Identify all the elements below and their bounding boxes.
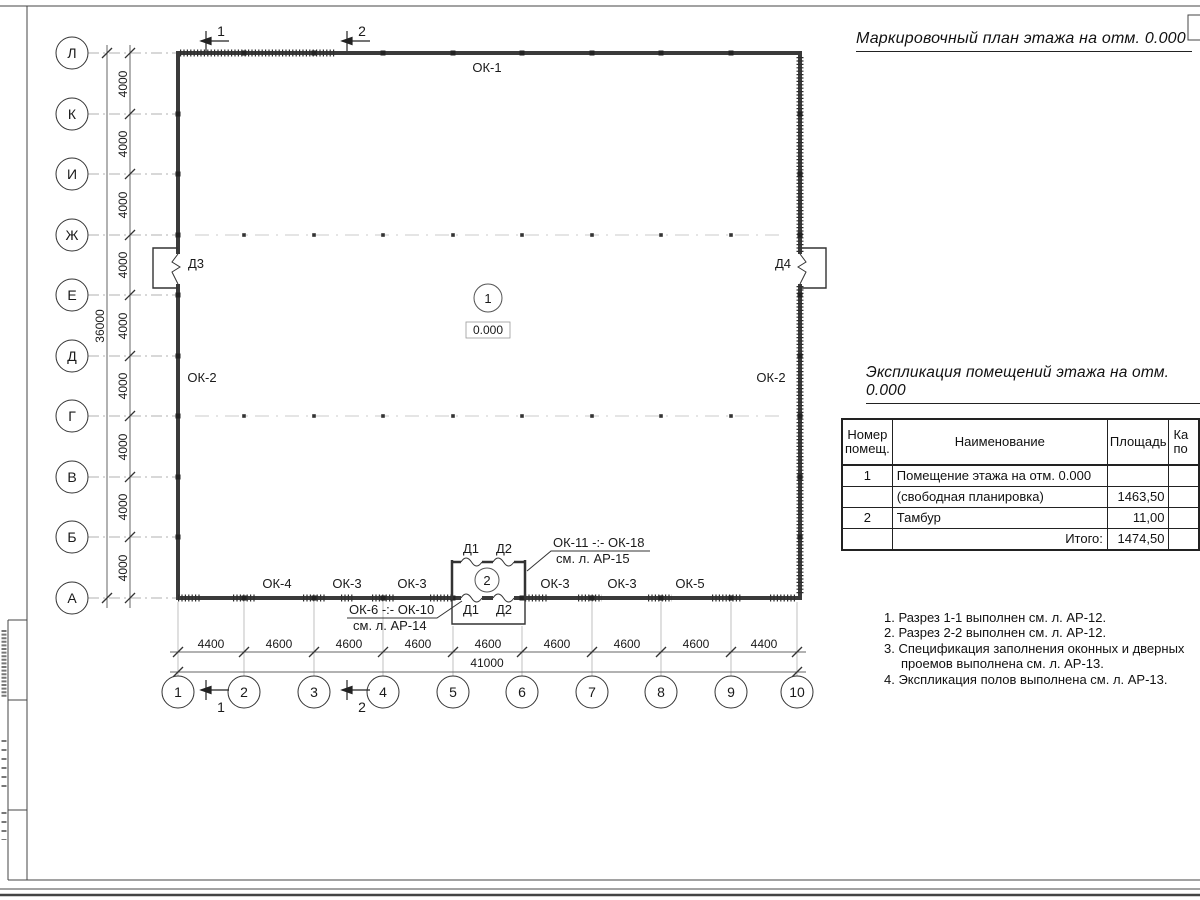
schedule-total-row: Итого: 1474,50: [842, 529, 1199, 551]
header-room-number-line1: Номер: [845, 428, 890, 442]
cell-room-area: [1107, 465, 1169, 487]
cell-room-name: (свободная планировка): [892, 487, 1107, 508]
header-name: Наименование: [892, 419, 1107, 465]
door-d3-leaf: [172, 254, 180, 284]
dim-label: 4400: [198, 637, 225, 651]
axis-row-label: Б: [67, 529, 76, 545]
dim-label: 4600: [475, 637, 502, 651]
dim-label: 4400: [751, 637, 778, 651]
row-dimension-labels: 4000 4000 4000 4000 4000 4000 4000 4000 …: [93, 70, 130, 581]
cell-room-area: 1463,50: [1107, 487, 1169, 508]
drawing-sheet: 4000 4000 4000 4000 4000 4000 4000 4000 …: [0, 0, 1200, 900]
window-tag: ОК-3: [397, 576, 426, 591]
axis-col-label: 1: [174, 684, 182, 700]
room-1-number: 1: [484, 291, 491, 306]
axis-col-bubbles: [162, 676, 813, 708]
axis-col-label: 5: [449, 684, 457, 700]
dim-label: 4600: [336, 637, 363, 651]
axis-row-label: Д: [67, 348, 77, 364]
section-label: 2: [358, 699, 366, 715]
section-mark-labels: 1 2 1 2: [217, 23, 366, 715]
window-tag: ОК-4: [262, 576, 291, 591]
axis-col-label: 4: [379, 684, 387, 700]
note-item: 2. Разрез 2-2 выполнен см. л. АР-12.: [884, 625, 1188, 640]
schedule-title: Экспликация помещений этажа на отм. 0.00…: [866, 364, 1200, 404]
cell-clipped: [1169, 529, 1199, 551]
door-tag-d1: Д1: [463, 541, 479, 556]
header-clipped: Ка по: [1169, 419, 1199, 465]
schedule-row: (свободная планировка) 1463,50: [842, 487, 1199, 508]
axis-row-label: Л: [67, 45, 76, 61]
cell-room-number: [842, 529, 892, 551]
door-tag-d1: Д1: [463, 602, 479, 617]
dim-label: 4000: [116, 433, 130, 460]
dim-label: 4000: [116, 251, 130, 278]
schedule-row: 1 Помещение этажа на отм. 0.000: [842, 465, 1199, 487]
note-item: 4. Экспликация полов выполнена см. л. АР…: [884, 672, 1188, 687]
dim-label: 4600: [683, 637, 710, 651]
axis-row-label: Ж: [66, 227, 79, 243]
header-clipped-line1: Ка: [1173, 428, 1196, 442]
cell-total-area: 1474,50: [1107, 529, 1169, 551]
cell-room-name: Тамбур: [892, 508, 1107, 529]
window-tag-ok2-left: ОК-2: [187, 370, 216, 385]
axis-row-label: К: [68, 106, 77, 122]
axis-row-label: А: [67, 590, 77, 606]
dim-label: 4600: [405, 637, 432, 651]
plan-title: Маркировочный план этажа на отм. 0.000: [856, 30, 1192, 52]
window-tag: ОК-5: [675, 576, 704, 591]
dim-label: 4000: [116, 191, 130, 218]
section-label: 1: [217, 23, 225, 39]
header-clipped-line2: по: [1173, 442, 1196, 456]
dim-label: 4600: [614, 637, 641, 651]
axis-col-label: 9: [727, 684, 735, 700]
header-room-number-line2: помещ.: [845, 442, 890, 456]
dim-total-label: 36000: [93, 309, 107, 343]
door-tag-d3: Д3: [188, 256, 204, 271]
axis-row-bubbles: [56, 37, 88, 614]
axis-col-bubble-labels: 1 2 3 4 5 6 7 8 9 10: [174, 684, 805, 700]
door-tag-d2: Д2: [496, 602, 512, 617]
axis-col-label: 7: [588, 684, 596, 700]
dim-label: 4000: [116, 130, 130, 157]
note-item: 1. Разрез 1-1 выполнен см. л. АР-12.: [884, 610, 1188, 625]
col-dimension-labels: 4400 4600 4600 4600 4600 4600 4600 4600 …: [198, 637, 778, 670]
axis-row-label: Е: [67, 287, 76, 303]
door-tag-d4: Д4: [775, 256, 791, 271]
dim-label: 4600: [266, 637, 293, 651]
schedule-header-row: Номер помещ. Наименование Площадь Ка по: [842, 419, 1199, 465]
cell-clipped: [1169, 508, 1199, 529]
section-label: 2: [358, 23, 366, 39]
window-tag: ОК-3: [607, 576, 636, 591]
cell-room-number: [842, 487, 892, 508]
axis-row-label: И: [67, 166, 77, 182]
dim-label: 4000: [116, 312, 130, 339]
level-mark: 0.000: [473, 323, 503, 337]
axis-row-label: Г: [68, 408, 76, 424]
axis-col-label: 6: [518, 684, 526, 700]
cell-room-area: 11,00: [1107, 508, 1169, 529]
axis-row-label: В: [67, 469, 76, 485]
dim-total-label: 41000: [470, 656, 504, 670]
cell-room-name: Помещение этажа на отм. 0.000: [892, 465, 1107, 487]
callout-bottom-line1: ОК-6 -:- ОК-10: [349, 602, 434, 617]
window-tag-ok1: ОК-1: [472, 60, 501, 75]
room-2-number: 2: [483, 573, 490, 588]
schedule-row: 2 Тамбур 11,00: [842, 508, 1199, 529]
door-d4-leaf: [798, 254, 806, 284]
cell-room-number: 2: [842, 508, 892, 529]
door-d3-porch: [153, 248, 178, 288]
note-item: 3. Спецификация заполнения оконных и две…: [884, 641, 1188, 672]
header-room-number: Номер помещ.: [842, 419, 892, 465]
door-d4-porch: [800, 248, 826, 288]
window-tag-ok2-right: ОК-2: [756, 370, 785, 385]
opening-tags: ОК-1 ОК-2 ОК-2 ОК-4 ОК-3 ОК-3 ОК-3 ОК-3 …: [187, 60, 791, 617]
cell-room-number: 1: [842, 465, 892, 487]
axis-col-label: 2: [240, 684, 248, 700]
window-tag: ОК-3: [540, 576, 569, 591]
axis-col-label: 3: [310, 684, 318, 700]
header-area: Площадь: [1107, 419, 1169, 465]
callout-top-line2: см. л. АР-15: [556, 551, 630, 566]
dim-label: 4000: [116, 493, 130, 520]
axis-col-label: 8: [657, 684, 665, 700]
dim-label: 4000: [116, 372, 130, 399]
cell-total-label: Итого:: [892, 529, 1107, 551]
callout-bottom-line2: см. л. АР-14: [353, 618, 427, 633]
section-label: 1: [217, 699, 225, 715]
dim-label: 4600: [544, 637, 571, 651]
room-schedule-table: Номер помещ. Наименование Площадь Ка по …: [841, 418, 1200, 551]
dim-label: 4000: [116, 554, 130, 581]
cell-clipped: [1169, 487, 1199, 508]
door-tag-d2: Д2: [496, 541, 512, 556]
cell-clipped: [1169, 465, 1199, 487]
axis-col-label: 10: [789, 684, 805, 700]
window-tag: ОК-3: [332, 576, 361, 591]
callout-top-line1: ОК-11 -:- ОК-18: [553, 535, 644, 550]
dim-label: 4000: [116, 70, 130, 97]
notes-list: 1. Разрез 1-1 выполнен см. л. АР-12. 2. …: [884, 610, 1188, 687]
